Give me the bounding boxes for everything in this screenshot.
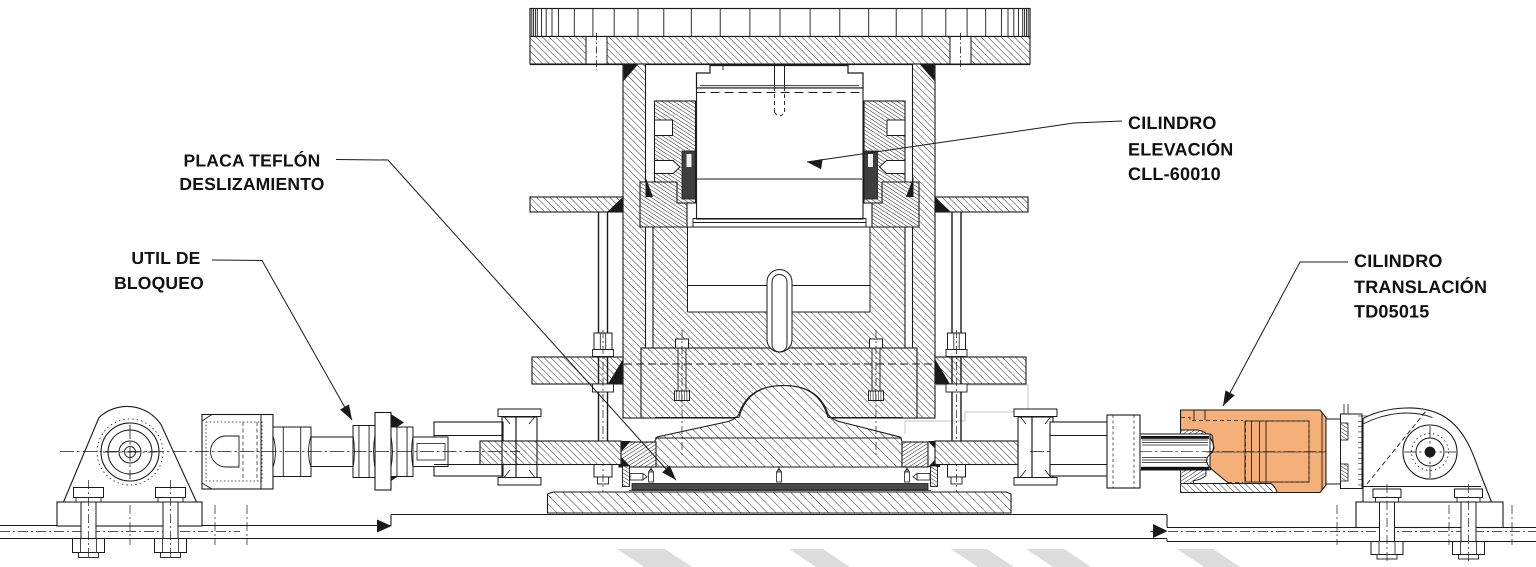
- svg-text:CILINDRO: CILINDRO: [1128, 113, 1217, 133]
- svg-text:BLOQUEO: BLOQUEO: [114, 273, 204, 293]
- svg-text:PLACA TEFLÓN: PLACA TEFLÓN: [184, 151, 321, 171]
- svg-text:ELEVACIÓN: ELEVACIÓN: [1128, 140, 1233, 160]
- svg-text:TD05015: TD05015: [1354, 302, 1429, 322]
- svg-text:CILINDRO: CILINDRO: [1354, 251, 1443, 271]
- svg-text:TRANSLACIÓN: TRANSLACIÓN: [1354, 277, 1487, 297]
- svg-text:UTIL DE: UTIL DE: [131, 248, 200, 268]
- svg-text:DESLIZAMIENTO: DESLIZAMIENTO: [179, 174, 324, 194]
- svg-text:CLL-60010: CLL-60010: [1128, 164, 1221, 184]
